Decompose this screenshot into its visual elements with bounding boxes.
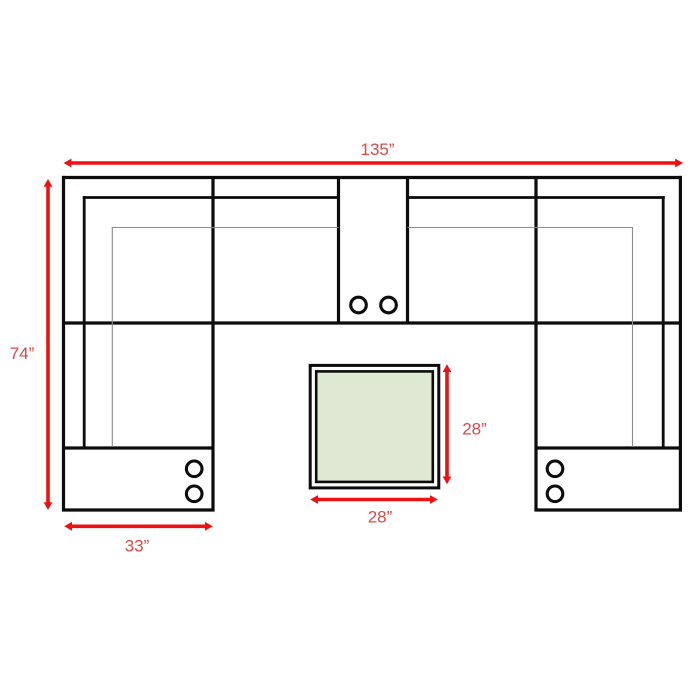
svg-text:28”: 28” (368, 508, 393, 527)
svg-text:33”: 33” (125, 537, 150, 556)
svg-text:135”: 135” (360, 140, 394, 159)
svg-text:28”: 28” (462, 420, 487, 439)
svg-text:74”: 74” (10, 344, 35, 363)
